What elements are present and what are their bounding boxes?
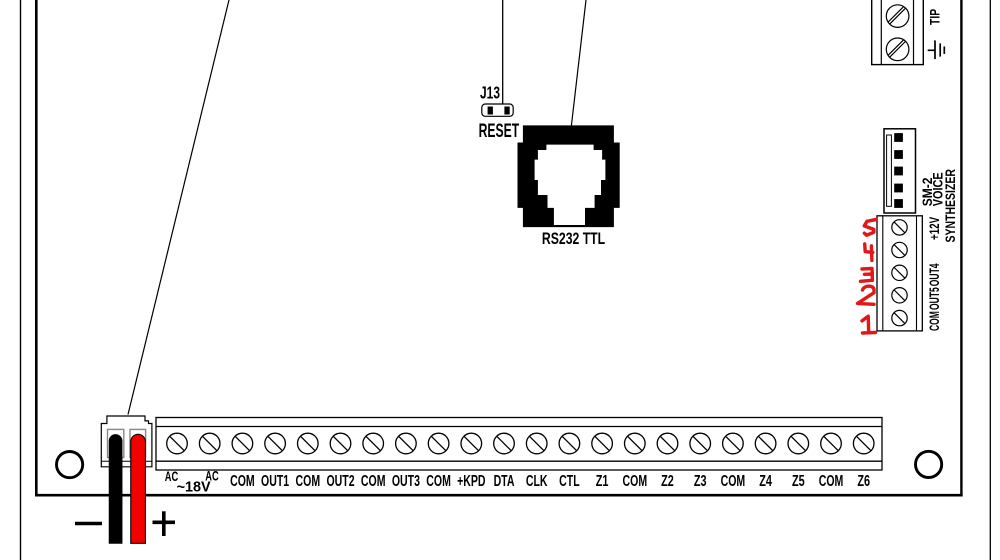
svg-text:COM: COM (928, 311, 942, 331)
svg-text:Z6: Z6 (857, 472, 870, 490)
svg-text:OUT5: OUT5 (928, 287, 942, 310)
svg-text:Z5: Z5 (792, 472, 805, 490)
svg-text:COM: COM (361, 472, 386, 490)
svg-text:TIP: TIP (927, 9, 943, 25)
svg-text:+12V: +12V (926, 217, 942, 240)
svg-text:Z4: Z4 (759, 472, 772, 490)
svg-text:COM: COM (623, 472, 648, 490)
svg-text:COM: COM (819, 472, 844, 490)
svg-text:RS232 TTL: RS232 TTL (542, 230, 605, 248)
svg-text:OUT2: OUT2 (326, 472, 354, 490)
svg-text:J13: J13 (480, 85, 500, 104)
svg-text:Z2: Z2 (661, 472, 674, 490)
svg-text:OUT1: OUT1 (261, 472, 289, 490)
svg-text:OUT4: OUT4 (928, 263, 942, 286)
svg-text:SYNTHESIZER: SYNTHESIZER (942, 169, 958, 242)
svg-text:COM: COM (721, 472, 746, 490)
svg-text:CTL: CTL (559, 472, 579, 490)
svg-text:Z3: Z3 (694, 472, 707, 490)
svg-text:COM: COM (230, 472, 255, 490)
svg-text:CLK: CLK (526, 472, 548, 490)
svg-text:DTA: DTA (494, 472, 515, 490)
svg-text:+KPD: +KPD (457, 472, 486, 490)
svg-text:Z1: Z1 (596, 472, 609, 490)
svg-text:COM: COM (296, 472, 321, 490)
svg-text:COM: COM (426, 472, 451, 490)
svg-text:OUT3: OUT3 (392, 472, 420, 490)
svg-text:~18V: ~18V (177, 480, 211, 496)
svg-text:RESET: RESET (479, 121, 520, 141)
